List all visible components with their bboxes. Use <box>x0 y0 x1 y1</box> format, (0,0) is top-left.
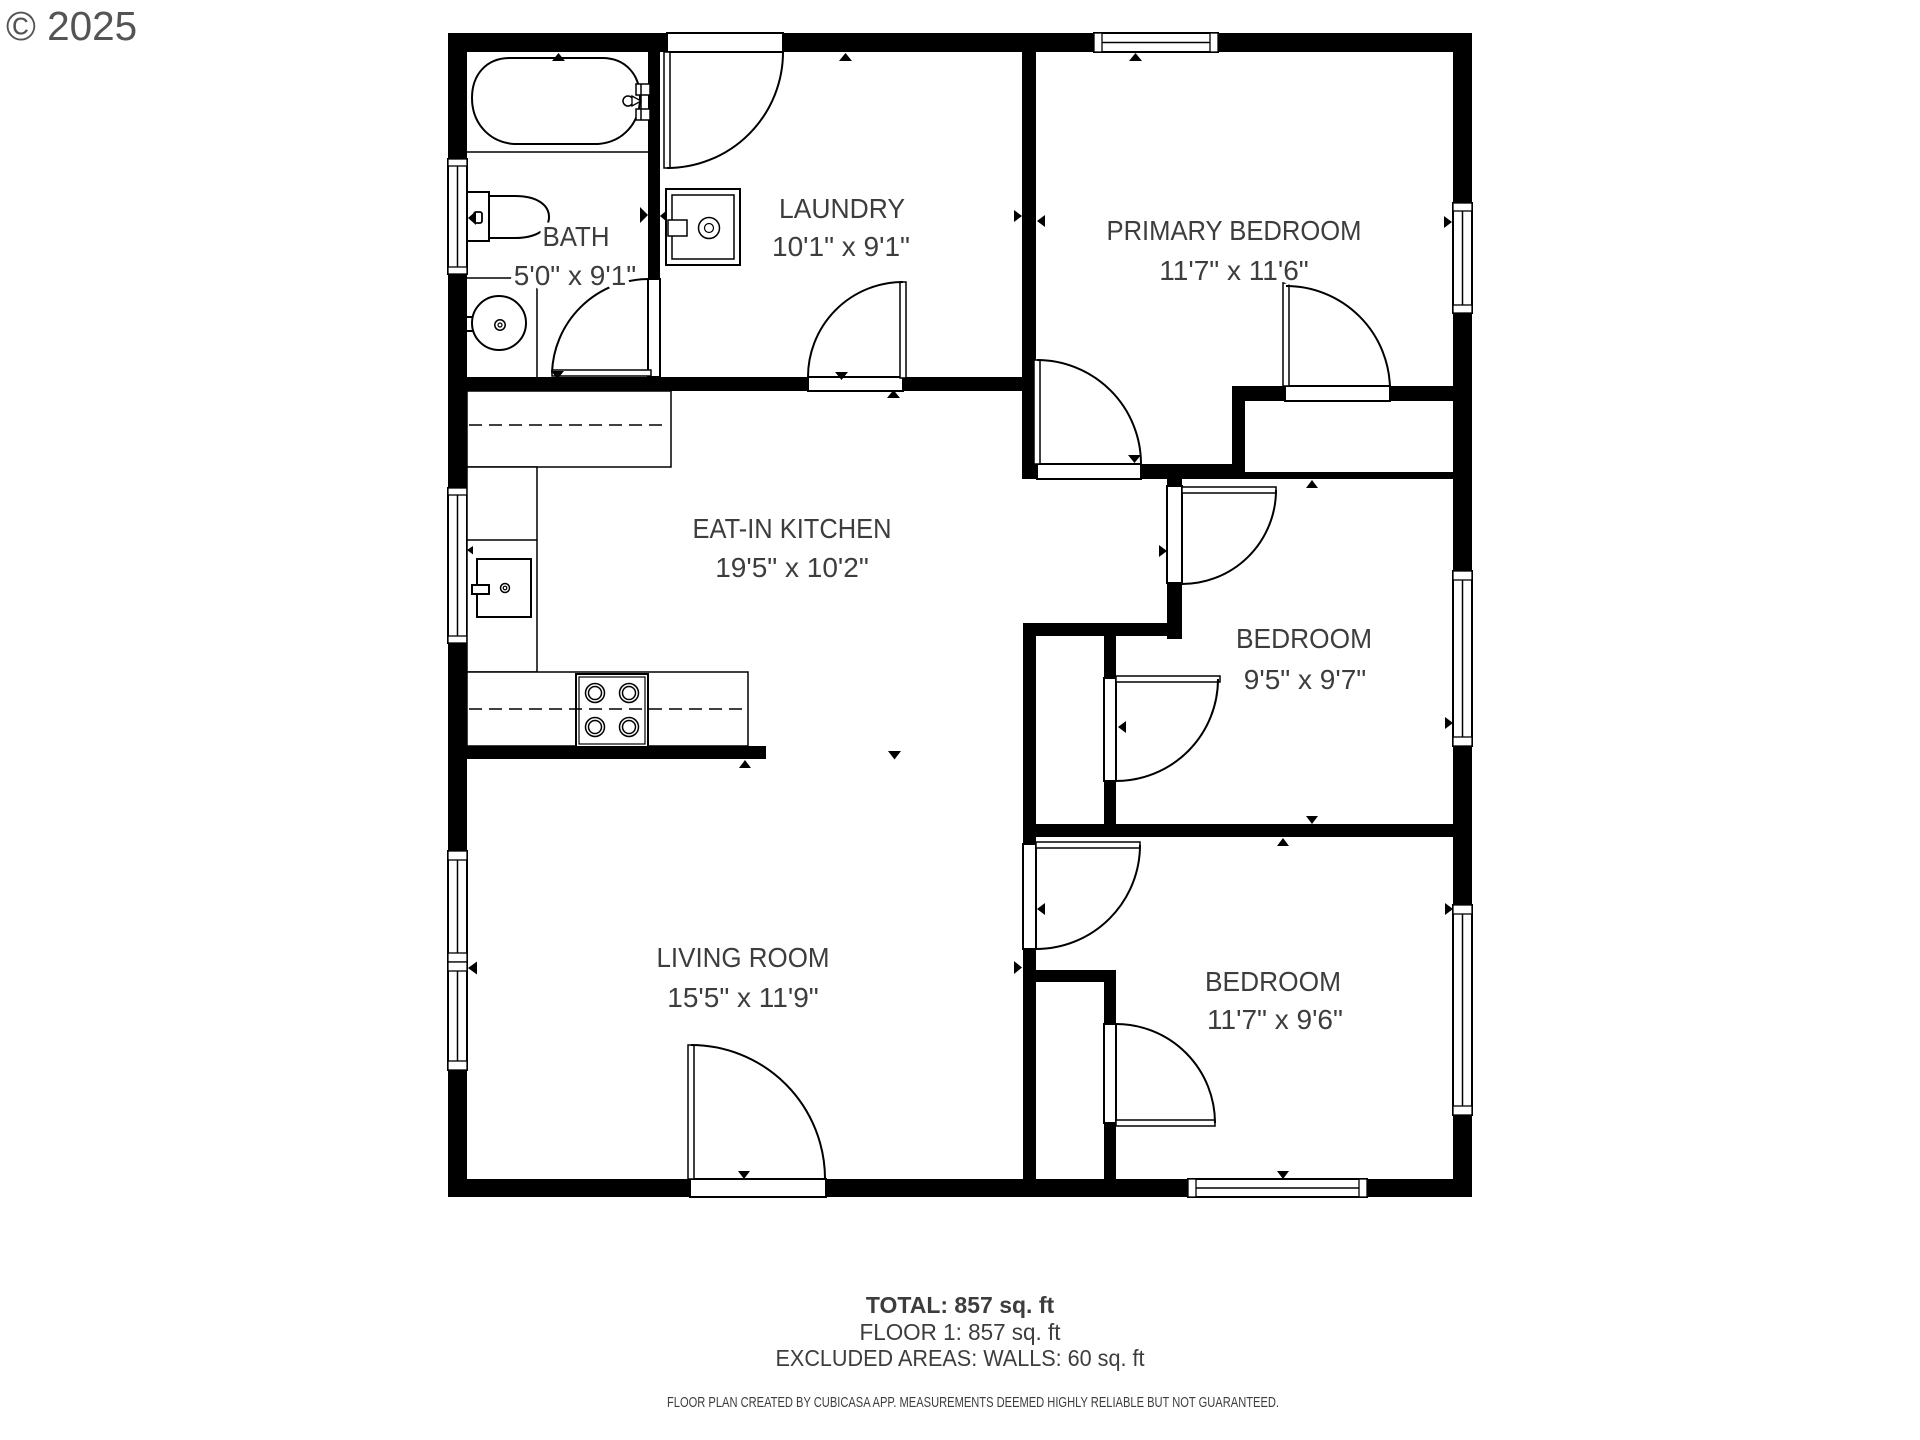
svg-text:19'5" x 10'2": 19'5" x 10'2" <box>715 552 869 583</box>
svg-text:PRIMARY BEDROOM: PRIMARY BEDROOM <box>1107 215 1362 246</box>
svg-text:FLOOR 1: 857 sq. ft: FLOOR 1: 857 sq. ft <box>860 1319 1062 1345</box>
svg-text:9'5" x 9'7": 9'5" x 9'7" <box>1244 664 1366 695</box>
svg-text:5'0" x 9'1": 5'0" x 9'1" <box>514 260 636 291</box>
svg-text:EXCLUDED AREAS: WALLS: 60 sq.: EXCLUDED AREAS: WALLS: 60 sq. ft <box>776 1345 1146 1371</box>
svg-text:LAUNDRY: LAUNDRY <box>779 193 905 224</box>
svg-text:10'1" x 9'1": 10'1" x 9'1" <box>772 231 910 262</box>
svg-text:BEDROOM: BEDROOM <box>1205 966 1341 997</box>
svg-text:11'7" x 11'6": 11'7" x 11'6" <box>1159 255 1308 286</box>
svg-text:FLOOR PLAN CREATED BY CUBICASA: FLOOR PLAN CREATED BY CUBICASA APP. MEAS… <box>667 1394 1279 1411</box>
svg-text:BEDROOM: BEDROOM <box>1236 623 1372 654</box>
svg-text:11'7" x 9'6": 11'7" x 9'6" <box>1207 1004 1343 1035</box>
svg-text:© 2025: © 2025 <box>6 3 137 49</box>
svg-text:LIVING ROOM: LIVING ROOM <box>657 942 830 973</box>
svg-text:EAT-IN KITCHEN: EAT-IN KITCHEN <box>693 513 892 544</box>
svg-text:BATH: BATH <box>543 221 610 252</box>
svg-text:TOTAL: 857 sq. ft: TOTAL: 857 sq. ft <box>866 1292 1055 1318</box>
svg-text:15'5" x 11'9": 15'5" x 11'9" <box>667 982 818 1013</box>
